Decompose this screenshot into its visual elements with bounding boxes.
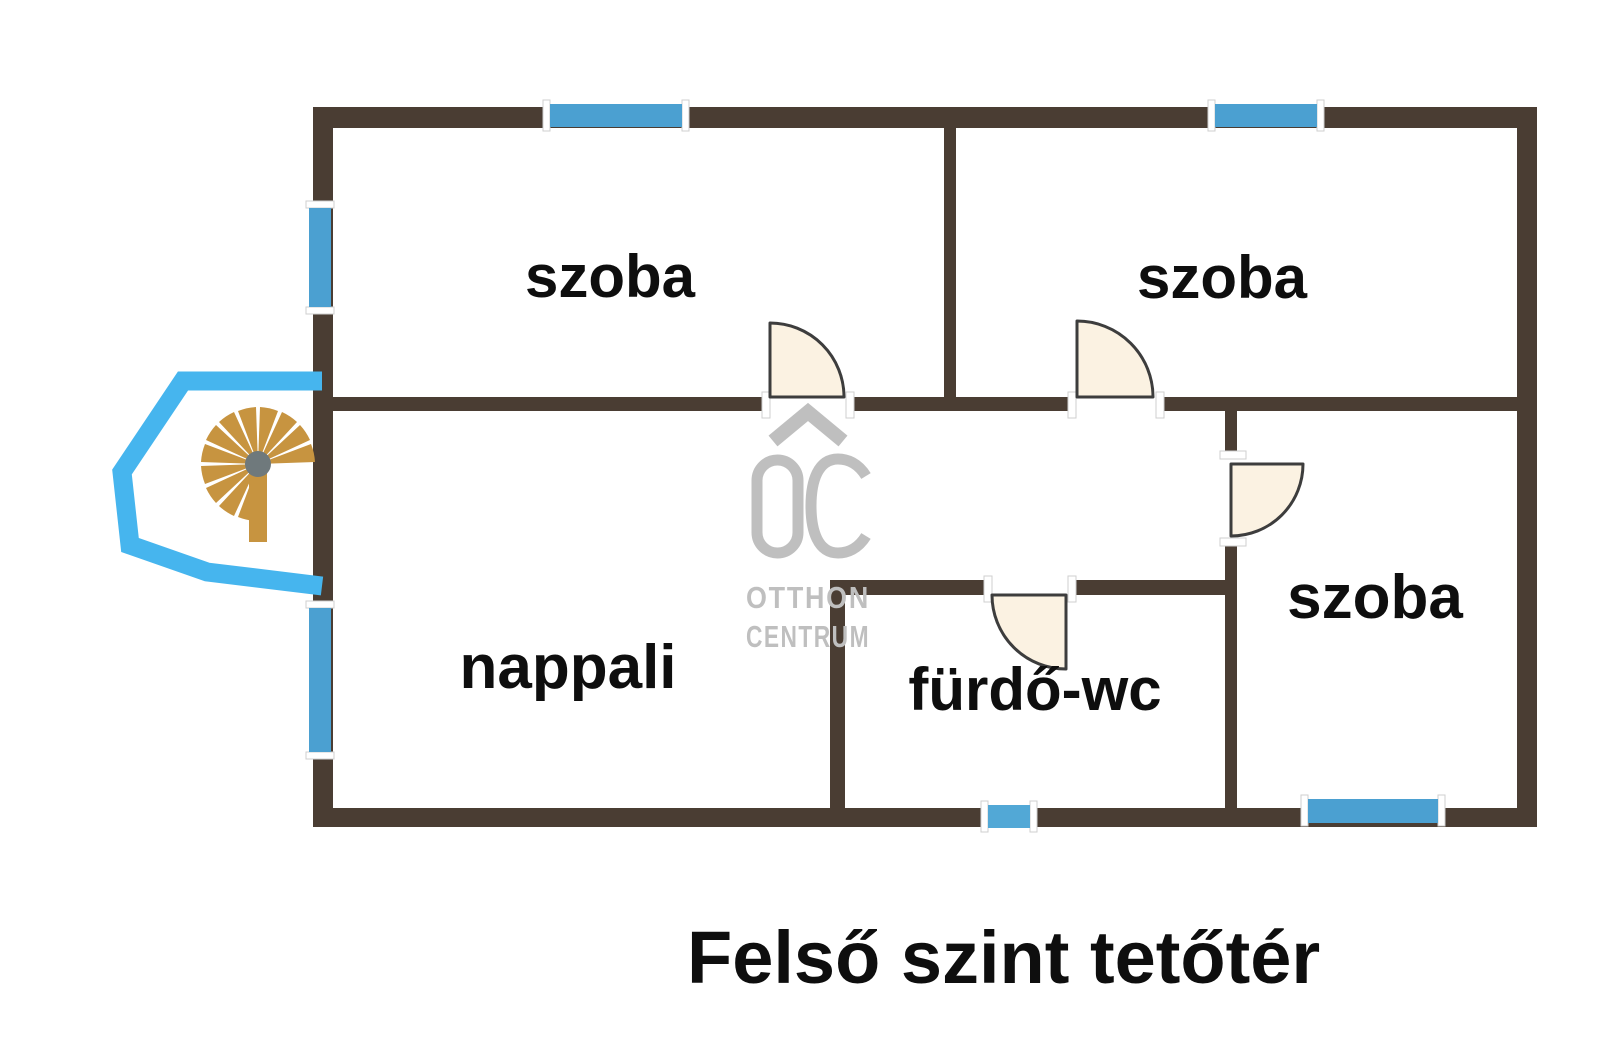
stair-hub (245, 451, 271, 477)
wall-right-room-seg2 (1225, 546, 1237, 808)
window-bathroom (981, 801, 1037, 832)
window-glass (309, 608, 331, 752)
window-glass (309, 208, 331, 307)
wall-right (1517, 107, 1537, 827)
room-labels: szoba szoba nappali fürdő-wc szoba (459, 243, 1463, 723)
wall-mid-horizontal-seg3 (1156, 397, 1517, 411)
label-room-right: szoba (1287, 563, 1463, 632)
window-left-lower (306, 601, 334, 759)
label-bathroom-wc: fürdő-wc (908, 656, 1161, 723)
door-jambs (762, 392, 1246, 602)
label-room-top-left: szoba (525, 243, 696, 310)
wall-between-top-rooms (944, 128, 956, 397)
watermark-line2: CENTRUM (746, 619, 870, 654)
window-glass (1215, 104, 1317, 127)
door-top-right-room (1077, 321, 1153, 397)
window-left-upper (306, 201, 334, 314)
window-glass (1308, 799, 1438, 823)
floor-plan-svg: OTTHON CENTRUM szoba szoba nappali fürdő… (0, 0, 1620, 1060)
floor-plan-canvas: OTTHON CENTRUM szoba szoba nappali fürdő… (0, 0, 1620, 1060)
door-right-room (1231, 464, 1303, 536)
wall-top (313, 107, 1537, 128)
wall-mid-horizontal-seg1 (333, 397, 770, 411)
label-room-top-right: szoba (1137, 244, 1308, 311)
label-living-room: nappali (459, 633, 676, 702)
watermark-otthon-centrum: OTTHON CENTRUM (746, 412, 870, 654)
doors (770, 321, 1303, 669)
window-glass (988, 805, 1030, 828)
watermark-line1: OTTHON (746, 580, 870, 615)
roof-chevron-icon (773, 412, 843, 441)
wall-mid-horizontal-seg2 (848, 397, 1076, 411)
wall-bathroom-top-seg2 (1068, 580, 1225, 595)
window-top-right-room (1208, 100, 1324, 131)
door-top-left-room (770, 323, 844, 397)
window-top-left-room (543, 100, 689, 131)
page-title: Felső szint tetőtér (687, 916, 1320, 999)
window-glass (550, 104, 682, 127)
window-right-room (1301, 795, 1445, 826)
spiral-staircase-icon (201, 407, 315, 542)
oc-logo-icon (757, 459, 866, 553)
